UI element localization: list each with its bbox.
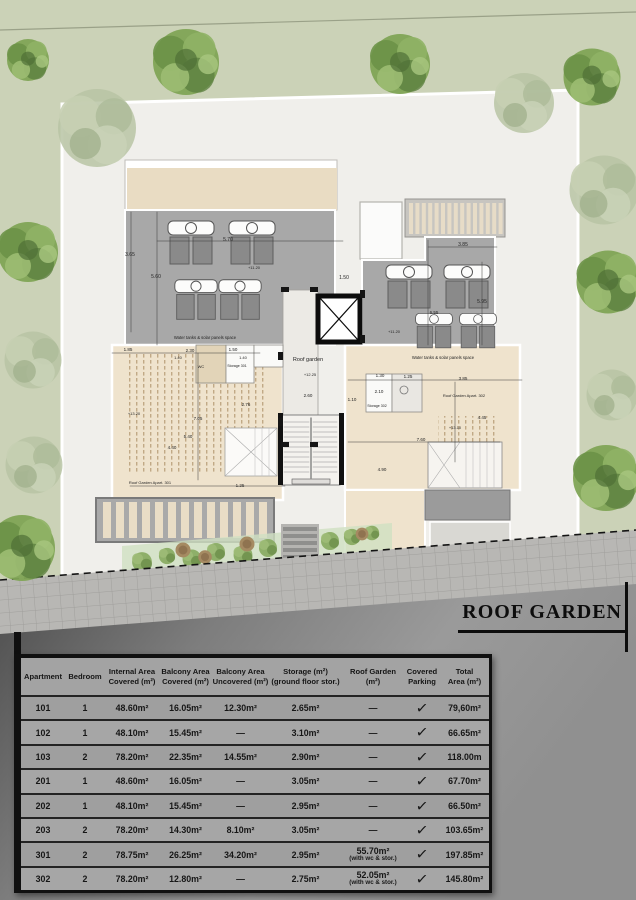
table-header-cell: Balcony Area Uncovered (m²) xyxy=(212,658,269,695)
table-row: 301278.75m²26.25m²34.20m²2.95m²55.70m²(w… xyxy=(21,841,489,865)
table-cell-storage: 3.05m² xyxy=(269,819,342,841)
table-cell-bedroom: 1 xyxy=(65,795,105,817)
table-cell-roof_garden: — xyxy=(342,770,404,792)
plan-label: Storage 301 xyxy=(227,364,247,368)
plan-label: 4.45 xyxy=(478,415,487,420)
table-cell-balcony_uncovered: 12.30m² xyxy=(212,697,269,719)
table-cell-roof_garden: — xyxy=(342,721,404,743)
table-header-cell: Roof Garden (m²) xyxy=(342,658,404,695)
plan-label: 5.95 xyxy=(477,299,487,305)
table-cell-parking: ✓ xyxy=(403,866,441,892)
plan-label: 3.85 xyxy=(459,376,468,381)
table-cell-parking: ✓ xyxy=(403,720,441,746)
plan-label: 7.60 xyxy=(417,437,426,442)
plan-label: 4.90 xyxy=(378,467,387,472)
table-cell-parking: ✓ xyxy=(403,768,441,794)
plan-label: 2.10 xyxy=(375,389,384,394)
table-cell-bedroom: 2 xyxy=(65,746,105,768)
table-cell-internal: 48.10m² xyxy=(105,721,159,743)
plan-label: +13.10 xyxy=(449,425,462,430)
table-row: 202148.10m²15.45m²—2.95m²—✓66.50m² xyxy=(21,793,489,817)
plan-label: 1.25 xyxy=(404,374,413,379)
plan-label: Storage 302 xyxy=(367,404,387,408)
plan-label: +12.25 xyxy=(304,372,317,377)
plan-label: 2.76 xyxy=(242,402,251,407)
plan-label: WC xyxy=(198,364,205,369)
table-cell-internal: 48.60m² xyxy=(105,697,159,719)
table-cell-apartment: 103 xyxy=(21,746,65,768)
roof-slab xyxy=(127,168,337,210)
table-cell-balcony_covered: 16.05m² xyxy=(159,697,212,719)
table-cell-apartment: 301 xyxy=(21,843,65,865)
table-cell-apartment: 201 xyxy=(21,770,65,792)
table-cell-parking: ✓ xyxy=(403,744,441,770)
roof-room xyxy=(360,202,402,259)
table-cell-balcony_uncovered: 8.10m² xyxy=(212,819,269,841)
table-cell-internal: 48.10m² xyxy=(105,795,159,817)
roof-garden-note: (with wc & stor.) xyxy=(349,880,396,887)
table-cell-internal: 78.20m² xyxy=(105,819,159,841)
table-cell-internal: 78.75m² xyxy=(105,843,159,865)
plan-label: 1.40 xyxy=(174,355,183,360)
plan-label: +11.20 xyxy=(248,265,261,270)
title-vertical-rule xyxy=(625,582,628,652)
plan-label: Water tanks & solar panels space xyxy=(174,335,237,340)
table-cell-internal: 48.60m² xyxy=(105,770,159,792)
apartment-areas-table: ApartmentBedroomInternal Area Covered (m… xyxy=(14,654,492,893)
plan-label: 1.40 xyxy=(239,355,248,360)
table-cell-balcony_uncovered: — xyxy=(212,721,269,743)
table-cell-bedroom: 2 xyxy=(65,868,105,890)
table-row: 203278.20m²14.30m²8.10m²3.05m²—✓103.65m² xyxy=(21,817,489,841)
plan-label: +13.20 xyxy=(128,411,141,416)
table-cell-bedroom: 1 xyxy=(65,697,105,719)
table-header-row: ApartmentBedroomInternal Area Covered (m… xyxy=(21,658,489,695)
table-cell-balcony_covered: 16.05m² xyxy=(159,770,212,792)
table-cell-internal: 78.20m² xyxy=(105,746,159,768)
table-cell-apartment: 101 xyxy=(21,697,65,719)
table-row: 101148.60m²16.05m²12.30m²2.65m²—✓79,60m² xyxy=(21,695,489,719)
table-header-cell: Apartment xyxy=(21,658,65,695)
table-cell-roof_garden: — xyxy=(342,795,404,817)
plan-label: 1.10 xyxy=(348,397,357,402)
table-cell-total: 145.80m² xyxy=(440,868,489,890)
table-cell-roof_garden: — xyxy=(342,746,404,768)
table-cell-roof_garden: — xyxy=(342,819,404,841)
stair-right xyxy=(428,442,502,488)
drawing-title: ROOF GARDEN xyxy=(430,601,622,624)
table-row: 102148.10m²15.45m²—3.10m²—✓66.65m² xyxy=(21,719,489,743)
table-cell-parking: ✓ xyxy=(403,695,441,721)
table-cell-total: 67.70m² xyxy=(440,770,489,792)
plan-label: 7.05 xyxy=(194,416,203,421)
plan-label: 5.70 xyxy=(223,237,233,243)
table-cell-apartment: 203 xyxy=(21,819,65,841)
table-cell-storage: 3.10m² xyxy=(269,721,342,743)
table-cell-balcony_uncovered: — xyxy=(212,795,269,817)
plan-label: 1.25 xyxy=(236,483,245,488)
plan-label: 2.30 xyxy=(186,348,195,353)
table-cell-roof_garden: 55.70m²(with wc & stor.) xyxy=(342,843,404,865)
main-staircase xyxy=(278,413,344,485)
table-body: 101148.60m²16.05m²12.30m²2.65m²—✓79,60m²… xyxy=(21,695,489,890)
table-header-cell: Balcony Area Covered (m²) xyxy=(159,658,212,695)
roof-garden-note: (with wc & stor.) xyxy=(349,856,396,863)
pergola-top-right xyxy=(405,199,505,237)
table-cell-balcony_uncovered: — xyxy=(212,770,269,792)
plan-label: 1.50 xyxy=(339,275,349,281)
plan-label: +11.20 xyxy=(388,329,401,334)
table-cell-roof_garden: 52.05m²(with wc & stor.) xyxy=(342,868,404,890)
roof-garden-drawing: 3.655.605.70+11.201.503.855.956.55+11.20… xyxy=(0,0,636,900)
table-row: 302278.20m²12.80m²—2.75m²52.05m²(with wc… xyxy=(21,866,489,890)
table-cell-storage: 3.05m² xyxy=(269,770,342,792)
table-cell-bedroom: 1 xyxy=(65,721,105,743)
plan-label: 5.60 xyxy=(151,274,161,280)
table-cell-apartment: 302 xyxy=(21,868,65,890)
table-cell-total: 79,60m² xyxy=(440,697,489,719)
table-cell-balcony_uncovered: — xyxy=(212,868,269,890)
table-cell-storage: 2.95m² xyxy=(269,843,342,865)
table-cell-bedroom: 1 xyxy=(65,770,105,792)
table-cell-balcony_covered: 14.30m² xyxy=(159,819,212,841)
table-cell-apartment: 102 xyxy=(21,721,65,743)
table-cell-balcony_uncovered: 34.20m² xyxy=(212,843,269,865)
table-cell-internal: 78.20m² xyxy=(105,868,159,890)
table-cell-storage: 2.90m² xyxy=(269,746,342,768)
table-cell-parking: ✓ xyxy=(403,793,441,819)
table-header-cell: Internal Area Covered (m²) xyxy=(105,658,159,695)
plan-label: 1.85 xyxy=(124,347,133,352)
table-cell-total: 66.50m² xyxy=(440,795,489,817)
table-cell-balcony_covered: 26.25m² xyxy=(159,843,212,865)
plan-label: 5.40 xyxy=(184,434,193,439)
plan-label: Roof Garden Apart. 302 xyxy=(443,393,486,398)
table-cell-balcony_covered: 22.35m² xyxy=(159,746,212,768)
plan-label: 1.30 xyxy=(376,373,385,378)
table-cell-bedroom: 2 xyxy=(65,819,105,841)
table-header-cell: Total Area (m²) xyxy=(440,658,489,695)
table-row: 103278.20m²22.35m²14.55m²2.90m²—✓118.00m xyxy=(21,744,489,768)
table-cell-total: 66.65m² xyxy=(440,721,489,743)
table-cell-roof_garden: — xyxy=(342,697,404,719)
table-cell-balcony_covered: 15.45m² xyxy=(159,721,212,743)
table-header-cell: Covered Parking xyxy=(404,658,440,695)
plan-label: Roof Garden Apart. 301 xyxy=(129,480,172,485)
table-cell-balcony_covered: 15.45m² xyxy=(159,795,212,817)
plan-label: Roof garden xyxy=(293,357,323,363)
table-cell-bedroom: 2 xyxy=(65,843,105,865)
plan-label: 3.65 xyxy=(125,252,135,258)
table-cell-balcony_covered: 12.80m² xyxy=(159,868,212,890)
plan-label: 2.60 xyxy=(304,393,313,398)
table-cell-total: 118.00m xyxy=(440,746,489,768)
plan-label: 6.55 xyxy=(430,310,439,315)
table-cell-apartment: 202 xyxy=(21,795,65,817)
table-cell-total: 103.65m² xyxy=(440,819,489,841)
table-row: 201148.60m²16.05m²—3.05m²—✓67.70m² xyxy=(21,768,489,792)
table-cell-parking: ✓ xyxy=(403,817,441,843)
plan-label: Water tanks & solar panels space xyxy=(412,355,475,360)
table-cell-storage: 2.65m² xyxy=(269,697,342,719)
table-header-cell: Bedroom xyxy=(65,658,105,695)
table-cell-balcony_uncovered: 14.55m² xyxy=(212,746,269,768)
table-header-cell: Storage (m²) (ground floor stor.) xyxy=(269,658,342,695)
plan-label: 3.85 xyxy=(458,242,468,248)
table-cell-storage: 2.95m² xyxy=(269,795,342,817)
table-cell-parking: ✓ xyxy=(403,842,441,868)
plan-label: 4.40 xyxy=(168,445,177,450)
table-cell-storage: 2.75m² xyxy=(269,868,342,890)
roof-slab-lower xyxy=(425,490,510,520)
table-cell-total: 197.85m² xyxy=(440,843,489,865)
plan-label: 1.50 xyxy=(229,347,238,352)
title-underline xyxy=(458,630,628,633)
stair-left xyxy=(225,428,277,476)
